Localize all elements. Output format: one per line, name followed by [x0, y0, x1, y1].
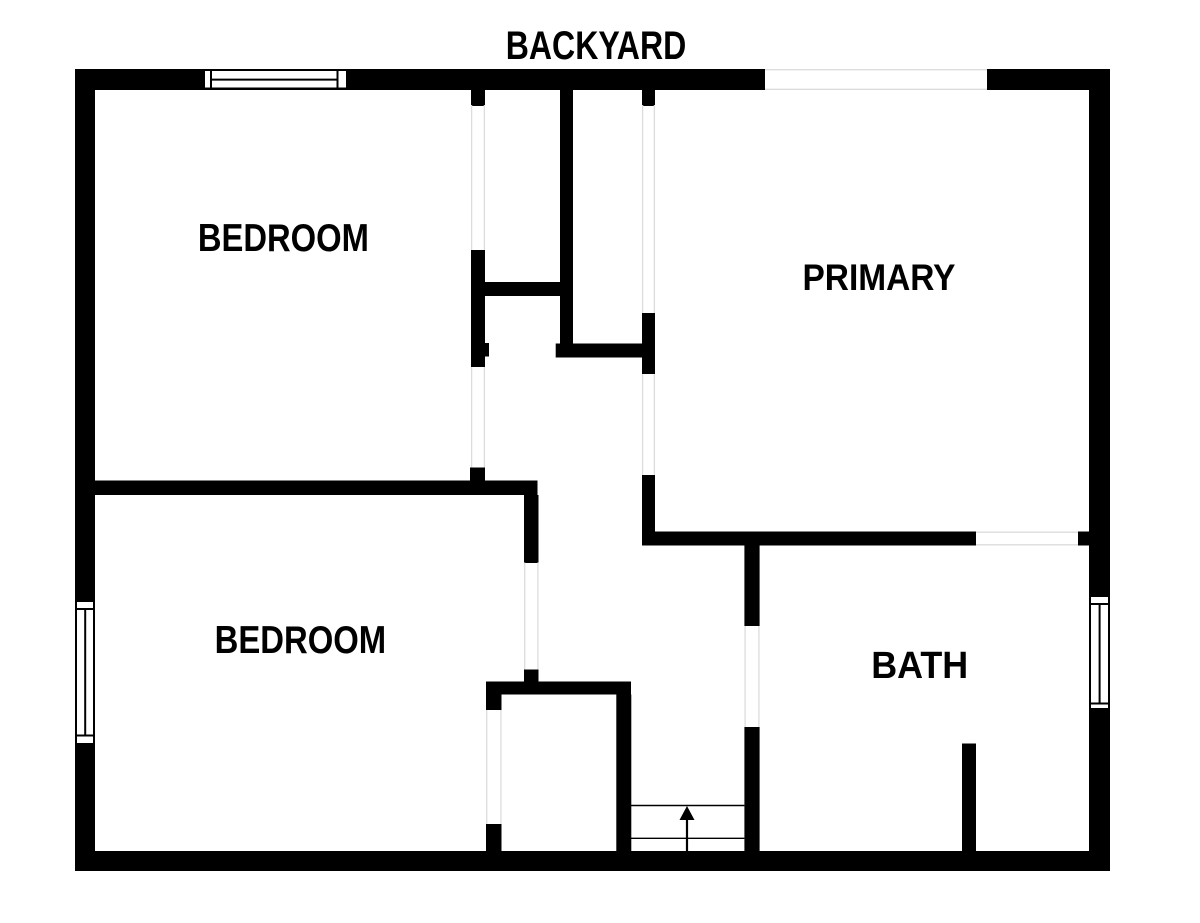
- svg-text:PRIMARY: PRIMARY: [803, 256, 956, 298]
- svg-text:BEDROOM: BEDROOM: [215, 619, 387, 662]
- svg-text:BEDROOM: BEDROOM: [198, 217, 369, 260]
- svg-text:BACKYARD: BACKYARD: [506, 24, 687, 68]
- svg-text:BATH: BATH: [871, 645, 968, 687]
